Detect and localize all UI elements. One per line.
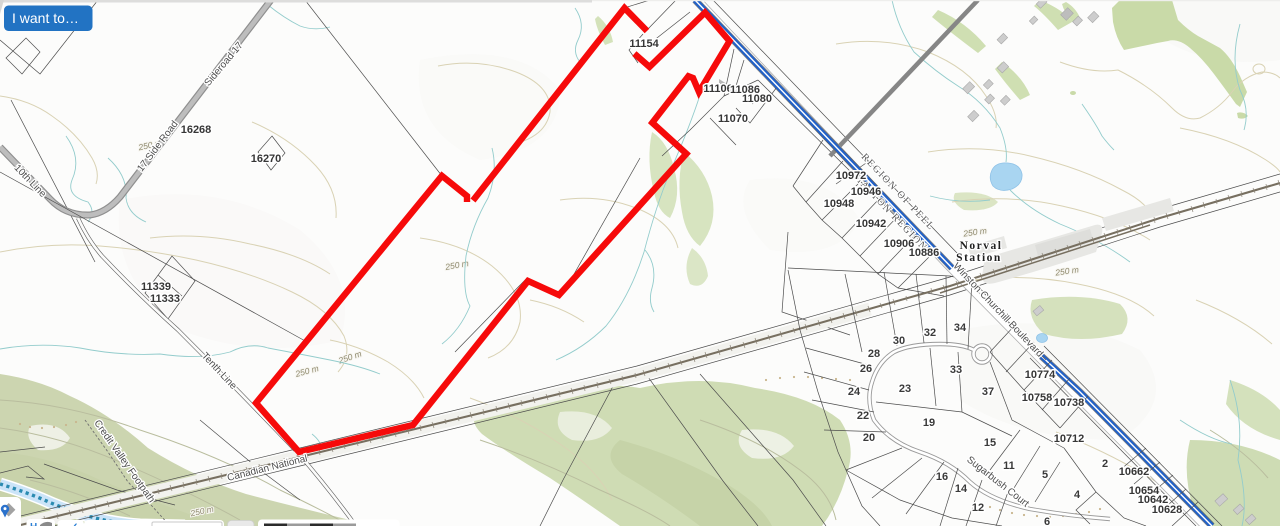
svg-text:2: 2 [1102, 458, 1108, 470]
svg-text:H: H [30, 522, 37, 526]
svg-text:11106: 11106 [703, 83, 732, 95]
svg-text:23: 23 [899, 383, 911, 395]
svg-text:16270: 16270 [251, 153, 282, 165]
svg-text:Norval: Norval [960, 240, 1003, 252]
svg-text:30: 30 [893, 335, 905, 347]
svg-text:10972: 10972 [836, 170, 867, 182]
svg-text:15: 15 [984, 437, 996, 449]
svg-text:24: 24 [848, 386, 861, 398]
svg-text:33: 33 [950, 364, 962, 376]
svg-text:11070: 11070 [718, 113, 748, 125]
svg-text:26: 26 [860, 363, 872, 375]
svg-text:4: 4 [1074, 489, 1081, 501]
svg-text:11154: 11154 [629, 38, 659, 50]
svg-text:10942: 10942 [856, 218, 887, 230]
svg-text:11080: 11080 [742, 93, 772, 105]
svg-text:10662: 10662 [1119, 466, 1150, 478]
svg-text:6: 6 [1044, 516, 1050, 526]
svg-text:16: 16 [936, 471, 948, 483]
svg-text:20: 20 [863, 432, 875, 444]
svg-text:32: 32 [924, 327, 936, 339]
svg-text:10774: 10774 [1025, 369, 1056, 381]
svg-text:10712: 10712 [1054, 433, 1085, 445]
svg-text:10738: 10738 [1054, 397, 1085, 409]
svg-text:Station: Station [956, 252, 1002, 264]
svg-text:16268: 16268 [181, 124, 212, 136]
svg-text:34: 34 [954, 322, 967, 334]
svg-text:22: 22 [857, 410, 869, 422]
svg-text:10628: 10628 [1152, 504, 1183, 516]
svg-text:14: 14 [955, 483, 968, 495]
svg-text:✓: ✓ [70, 522, 78, 526]
svg-text:10886: 10886 [909, 247, 940, 259]
svg-text:10758: 10758 [1022, 392, 1053, 404]
svg-text:28: 28 [868, 348, 880, 360]
svg-text:19: 19 [923, 417, 935, 429]
svg-text:11: 11 [1003, 460, 1015, 472]
svg-text:12: 12 [972, 502, 984, 514]
svg-text:5: 5 [1042, 469, 1048, 481]
svg-text:I want to…: I want to… [12, 10, 79, 26]
svg-text:10948: 10948 [824, 198, 855, 210]
svg-text:10946: 10946 [851, 186, 882, 198]
svg-text:11333: 11333 [150, 293, 180, 305]
svg-text:11339: 11339 [141, 281, 171, 293]
svg-text:37: 37 [982, 386, 994, 398]
